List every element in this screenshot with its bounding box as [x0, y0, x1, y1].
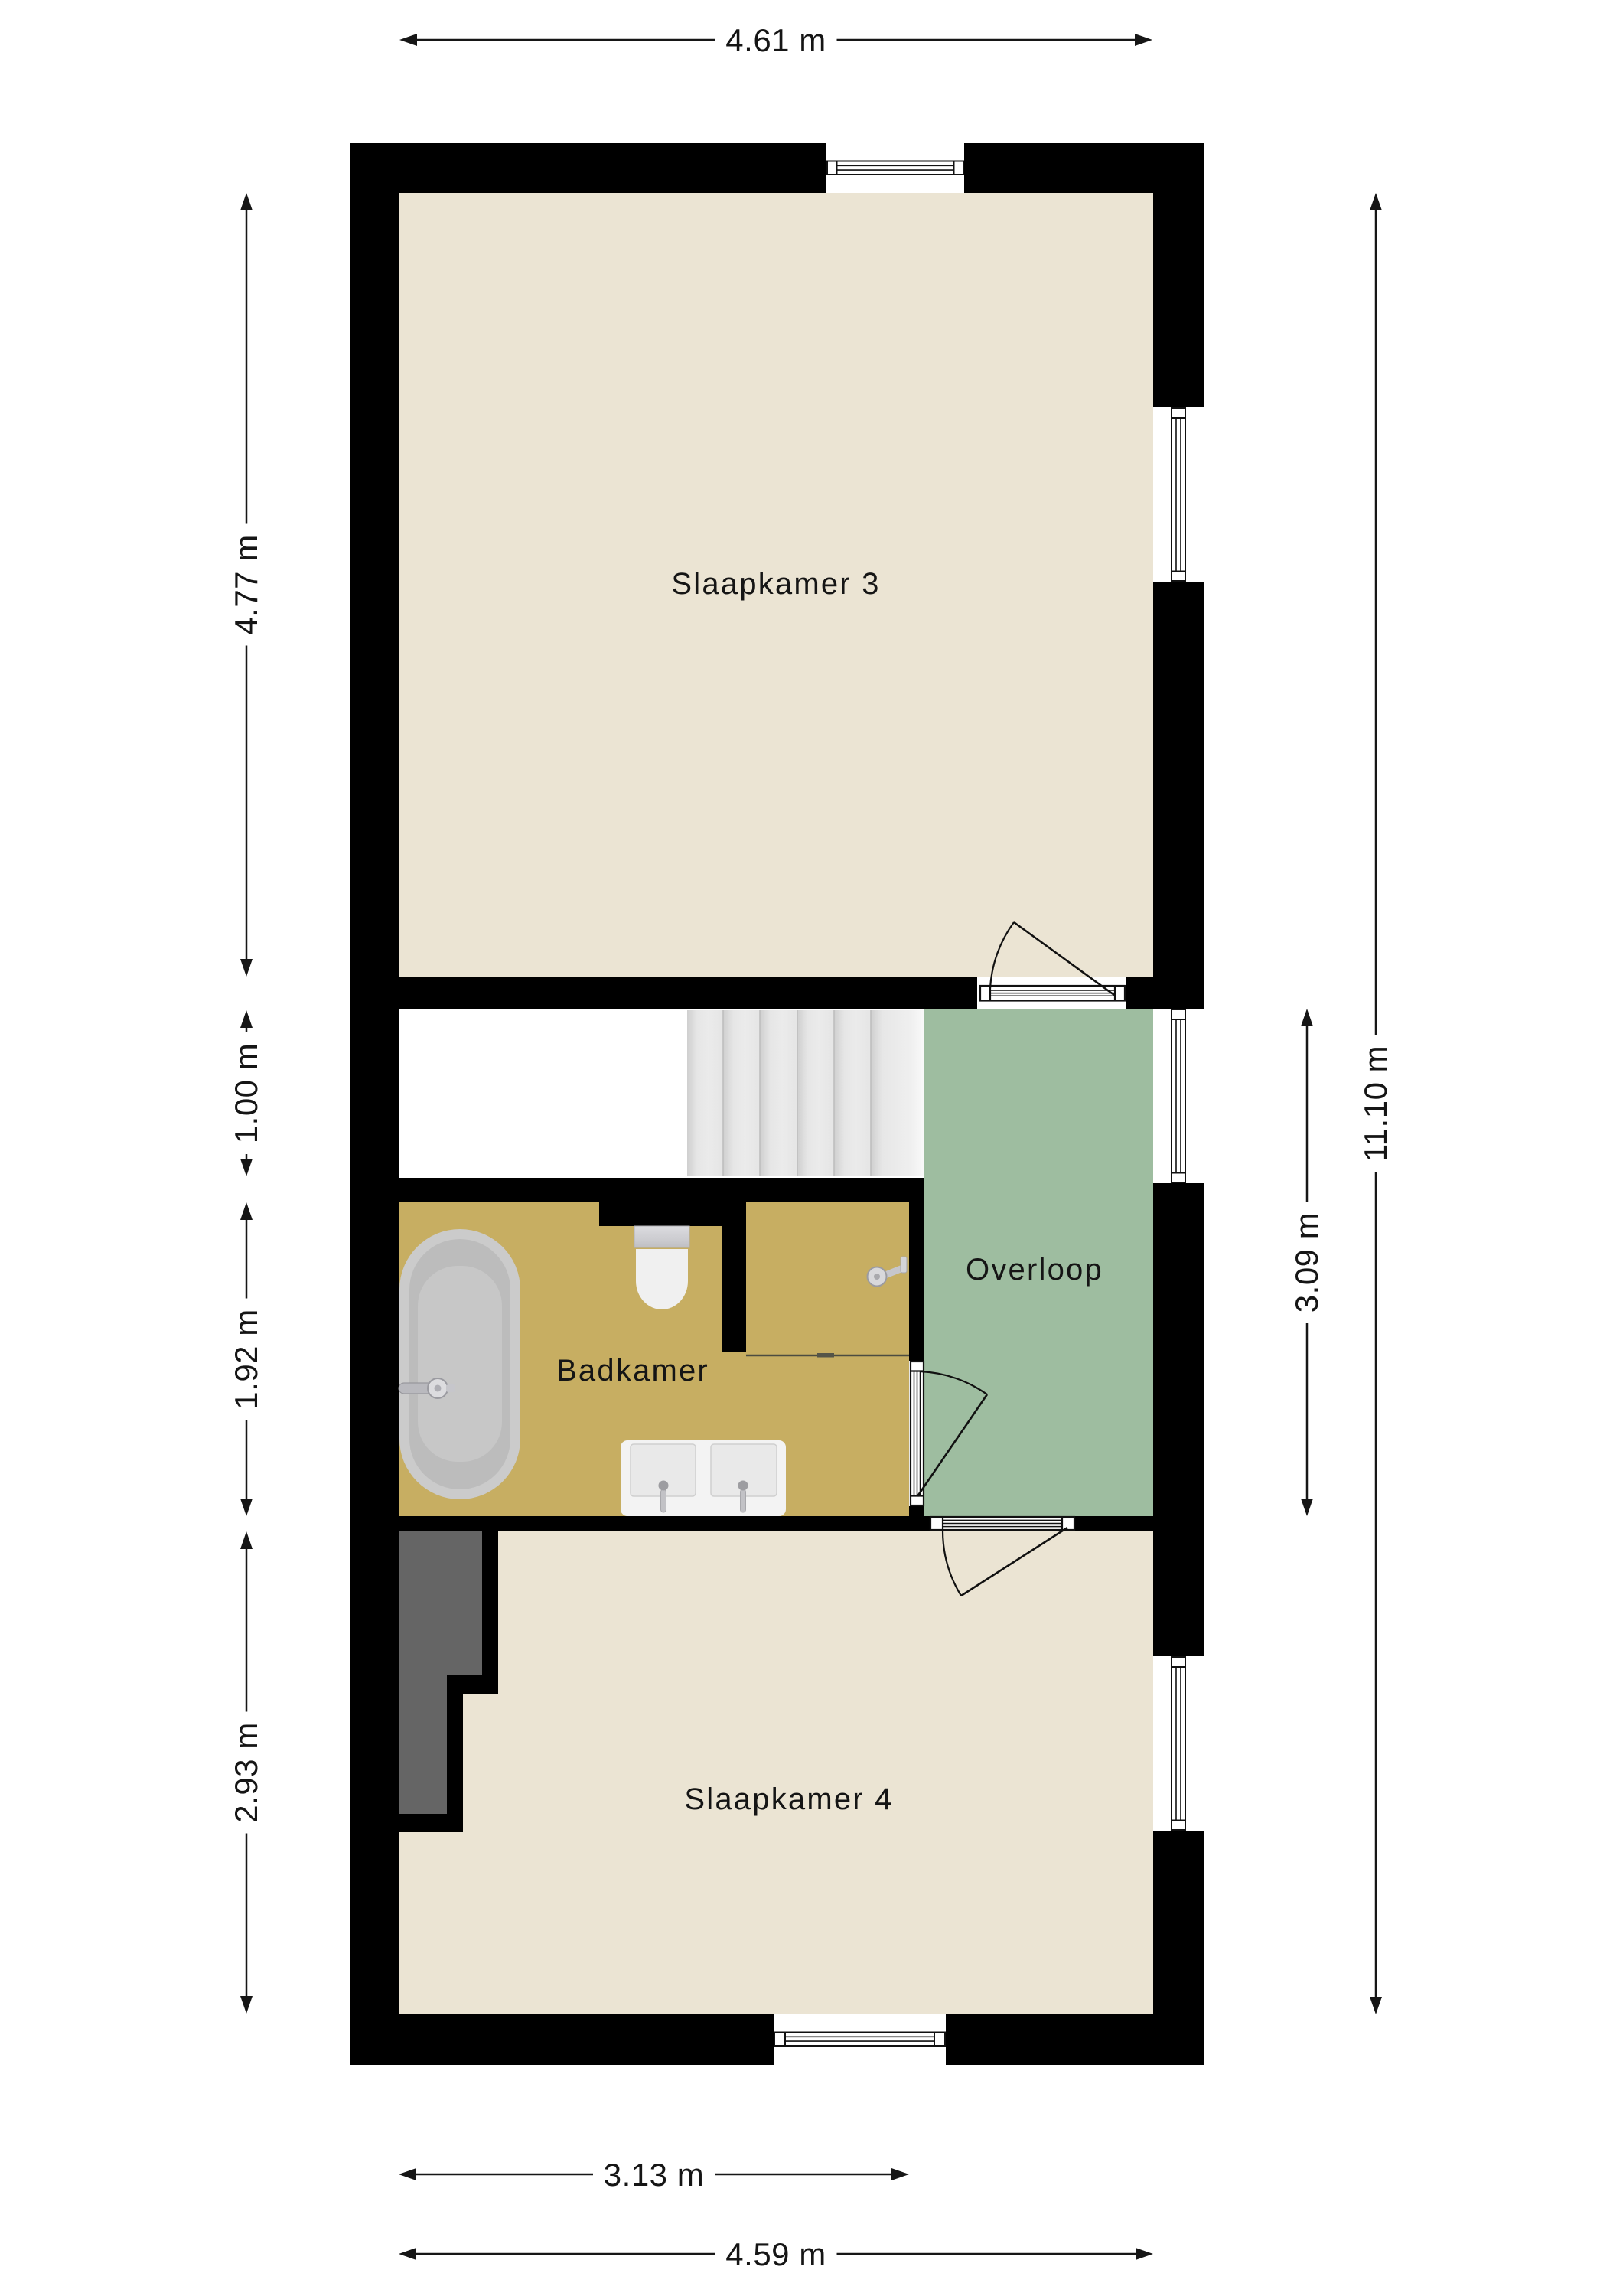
svg-text:Badkamer: Badkamer: [556, 1354, 709, 1388]
svg-text:2.93 m: 2.93 m: [228, 1722, 264, 1822]
svg-text:1.92 m: 1.92 m: [228, 1309, 264, 1409]
svg-text:4.77 m: 4.77 m: [228, 534, 264, 634]
svg-text:1.00 m: 1.00 m: [228, 1043, 264, 1143]
svg-text:4.59 m: 4.59 m: [725, 2236, 826, 2272]
svg-text:Slaapkamer 4: Slaapkamer 4: [684, 1782, 893, 1816]
svg-text:Overloop: Overloop: [966, 1253, 1103, 1287]
svg-text:11.10 m: 11.10 m: [1357, 1045, 1393, 1162]
svg-text:4.61 m: 4.61 m: [725, 22, 826, 58]
svg-text:3.09 m: 3.09 m: [1289, 1212, 1325, 1313]
svg-text:3.13 m: 3.13 m: [604, 2157, 704, 2193]
svg-text:Slaapkamer 3: Slaapkamer 3: [671, 567, 880, 601]
